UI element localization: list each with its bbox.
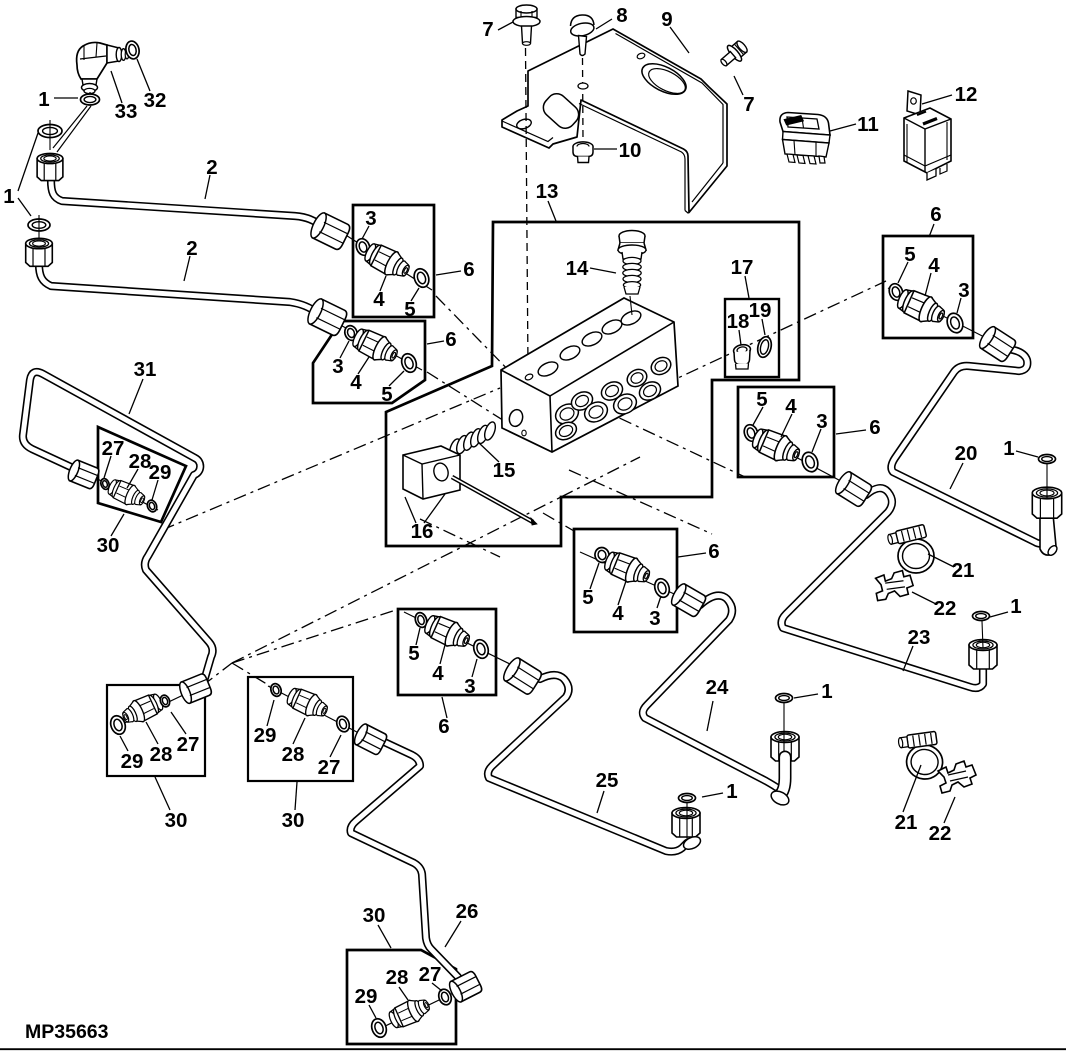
svg-text:27: 27 (102, 437, 125, 460)
svg-text:21: 21 (952, 559, 975, 582)
svg-text:3: 3 (816, 410, 827, 433)
svg-text:25: 25 (596, 769, 619, 792)
svg-text:MP35663: MP35663 (25, 1021, 109, 1043)
svg-text:16: 16 (411, 520, 434, 543)
svg-text:28: 28 (386, 966, 409, 989)
svg-text:22: 22 (934, 597, 957, 620)
svg-text:7: 7 (482, 18, 493, 41)
svg-text:5: 5 (904, 243, 915, 266)
svg-text:6: 6 (438, 715, 449, 738)
svg-text:30: 30 (363, 904, 386, 927)
svg-text:5: 5 (381, 383, 392, 406)
svg-text:5: 5 (404, 298, 415, 321)
svg-text:27: 27 (177, 733, 200, 756)
svg-text:28: 28 (150, 743, 173, 766)
svg-text:4: 4 (373, 288, 385, 311)
svg-text:4: 4 (928, 254, 940, 277)
svg-text:1: 1 (726, 780, 737, 803)
svg-text:30: 30 (282, 809, 305, 832)
svg-text:14: 14 (566, 257, 589, 280)
svg-text:22: 22 (929, 822, 952, 845)
svg-text:4: 4 (432, 662, 444, 685)
svg-text:8: 8 (616, 4, 627, 27)
svg-text:30: 30 (165, 809, 188, 832)
svg-text:12: 12 (955, 83, 978, 106)
svg-text:3: 3 (958, 279, 969, 302)
svg-text:7: 7 (743, 93, 754, 116)
svg-text:21: 21 (895, 811, 918, 834)
svg-text:18: 18 (727, 310, 750, 333)
svg-text:6: 6 (708, 540, 719, 563)
svg-text:6: 6 (869, 416, 880, 439)
svg-text:30: 30 (97, 534, 120, 557)
svg-text:29: 29 (121, 750, 144, 773)
svg-text:4: 4 (612, 602, 624, 625)
svg-text:24: 24 (706, 676, 729, 699)
svg-text:19: 19 (749, 299, 772, 322)
svg-text:5: 5 (756, 388, 767, 411)
svg-text:4: 4 (785, 395, 797, 418)
svg-text:3: 3 (365, 207, 376, 230)
svg-text:26: 26 (456, 900, 479, 923)
svg-text:32: 32 (144, 89, 167, 112)
svg-text:31: 31 (134, 358, 157, 381)
svg-text:27: 27 (318, 756, 341, 779)
svg-text:9: 9 (661, 8, 672, 31)
svg-text:29: 29 (254, 724, 277, 747)
svg-text:23: 23 (908, 626, 931, 649)
svg-text:6: 6 (445, 328, 456, 351)
svg-text:1: 1 (1010, 595, 1021, 618)
svg-text:15: 15 (493, 459, 516, 482)
svg-text:4: 4 (350, 371, 362, 394)
svg-text:6: 6 (463, 258, 474, 281)
svg-text:29: 29 (355, 985, 378, 1008)
svg-text:1: 1 (1003, 437, 1014, 460)
svg-text:5: 5 (582, 586, 593, 609)
svg-text:20: 20 (955, 442, 978, 465)
svg-text:2: 2 (206, 156, 217, 179)
svg-text:17: 17 (731, 256, 754, 279)
svg-text:10: 10 (619, 139, 642, 162)
svg-text:29: 29 (149, 461, 172, 484)
svg-text:1: 1 (3, 185, 14, 208)
svg-text:3: 3 (464, 675, 475, 698)
svg-text:1: 1 (38, 88, 49, 111)
svg-text:6: 6 (930, 203, 941, 226)
svg-text:33: 33 (115, 100, 138, 123)
svg-text:1: 1 (821, 680, 832, 703)
svg-text:27: 27 (419, 963, 442, 986)
svg-text:13: 13 (536, 180, 559, 203)
svg-text:28: 28 (282, 743, 305, 766)
svg-text:3: 3 (332, 355, 343, 378)
svg-text:3: 3 (649, 607, 660, 630)
svg-text:2: 2 (186, 237, 197, 260)
svg-text:5: 5 (408, 642, 419, 665)
svg-text:11: 11 (857, 113, 879, 136)
